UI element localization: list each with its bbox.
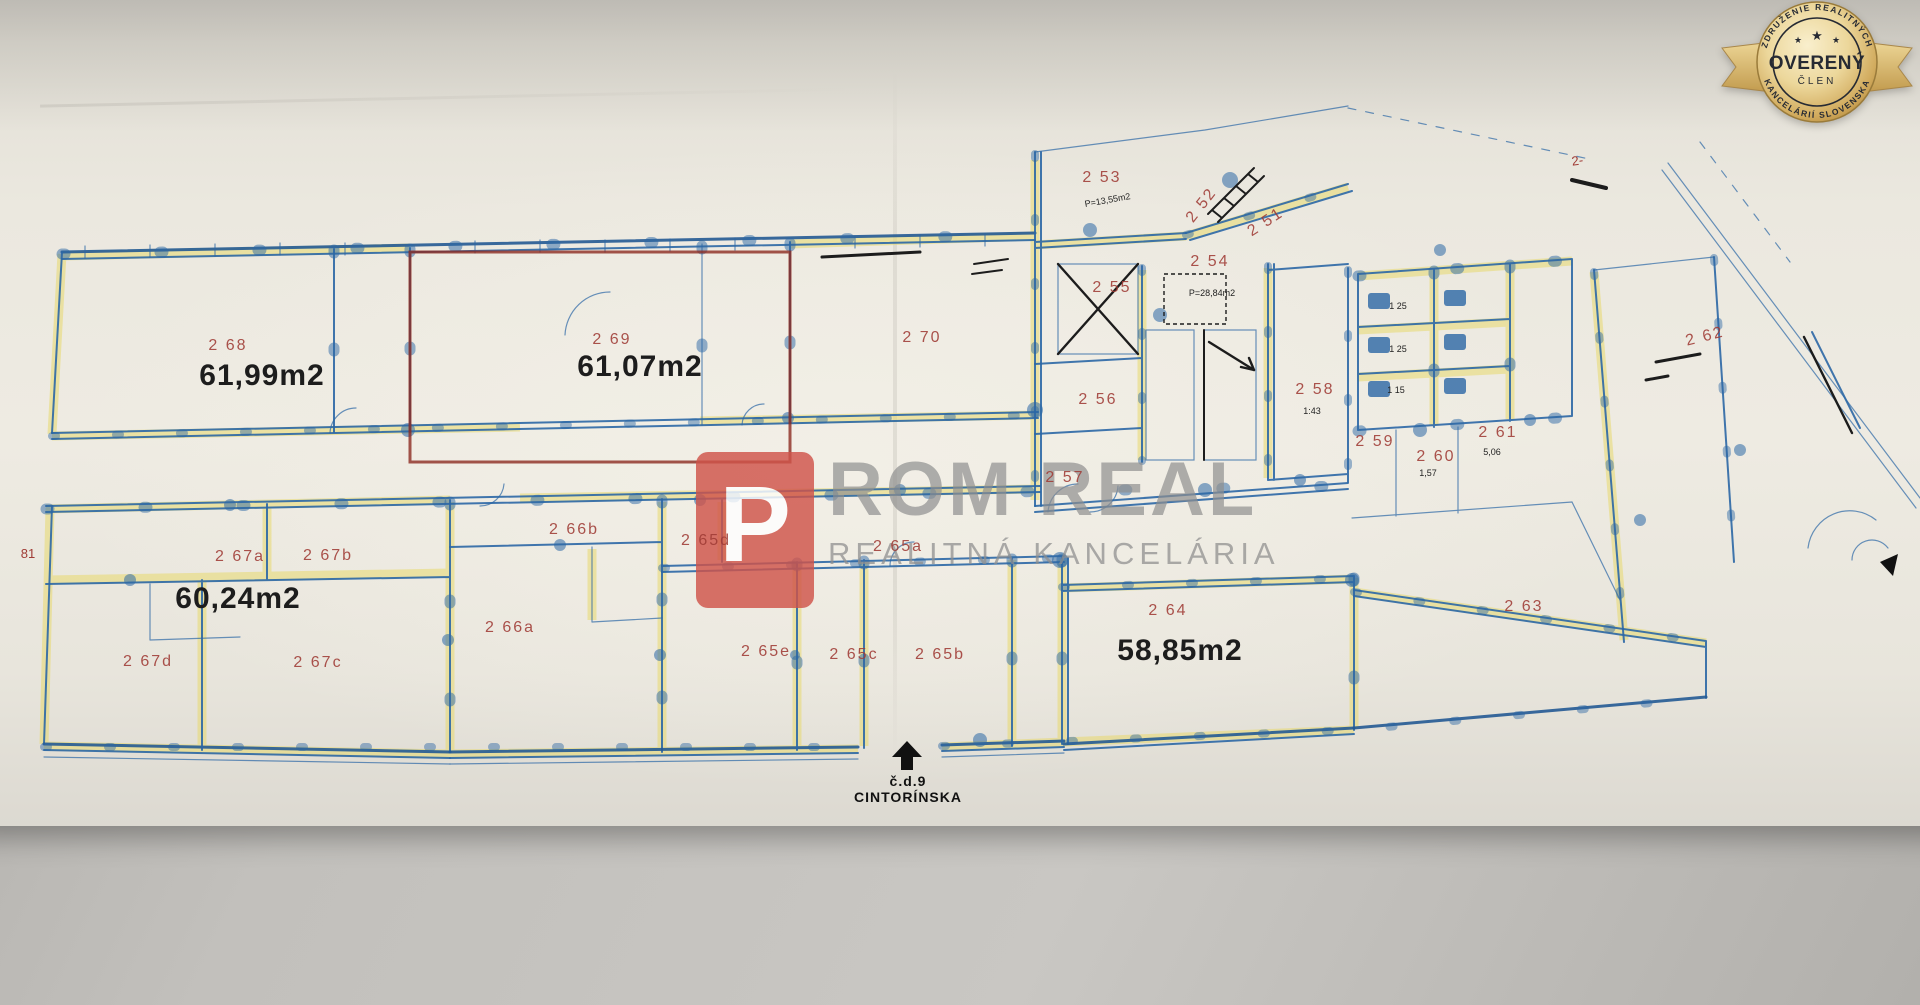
corner-mark-top-right: 2- xyxy=(1571,152,1585,168)
room-label-2-67c: 2 67c xyxy=(293,654,342,671)
room-label-2-65b: 2 65b xyxy=(915,646,965,663)
room-note-2-54: P=28,84m2 xyxy=(1189,288,1235,298)
room-label-2-67d: 2 67d xyxy=(123,653,173,670)
room-area-2-64: 58,85m2 xyxy=(1117,634,1242,667)
verified-badge: ★ ★ ★ OVERENÝ ČLEN ZDRUŽENIE REALITNÝCH … xyxy=(1712,0,1920,138)
corner-mark-81: 81 xyxy=(21,546,35,561)
room-note-2-58: 1:43 xyxy=(1303,406,1321,416)
room-label-2-69: 2 69 xyxy=(592,331,631,348)
room-label-2-56: 2 56 xyxy=(1078,391,1117,408)
entrance-arrow-icon xyxy=(892,741,922,770)
room-note-2-53: P=13,55m2 xyxy=(1084,191,1131,209)
room-label-2-55: 2 55 xyxy=(1092,279,1131,296)
room-note-2-61: 5,06 xyxy=(1483,447,1501,457)
room-label-2-52: 2 52 xyxy=(1183,185,1220,226)
room-label-2-61: 2 61 xyxy=(1478,424,1517,441)
room-label-2-58: 2 58 xyxy=(1295,381,1334,398)
room-label-2-70: 2 70 xyxy=(902,329,941,346)
direction-arrow-icon xyxy=(1880,554,1898,576)
badge-title: OVERENÝ xyxy=(1769,52,1865,74)
room-area-2-68: 61,99m2 xyxy=(199,359,324,392)
room-label-2-54: 2 54 xyxy=(1190,253,1229,270)
room-label-2-67a: 2 67a xyxy=(215,548,265,565)
floor-plan-labels: 2 68 61,99m2 2 69 61,07m2 2 70 2 53 P=13… xyxy=(0,0,1920,1005)
room-label-2-53: 2 53 xyxy=(1082,169,1121,186)
badge-subtitle: ČLEN xyxy=(1798,74,1837,87)
room-area-2-69: 61,07m2 xyxy=(577,350,702,383)
badge-star-left: ★ xyxy=(1794,35,1802,45)
floorplan-photo: P ROM REAL REALITNÁ KANCELÁRIA 2 68 61,9… xyxy=(0,0,1920,1005)
room-label-2-65a: 2 65a xyxy=(873,538,923,555)
room-label-2-59: 2 59 xyxy=(1355,433,1394,450)
stall-dim-1: 1 25 xyxy=(1389,301,1407,311)
room-label-2-63: 2 63 xyxy=(1504,598,1543,615)
verified-badge-seal: ★ ★ ★ OVERENÝ ČLEN ZDRUŽENIE REALITNÝCH … xyxy=(1712,0,1920,138)
room-label-2-65c: 2 65c xyxy=(829,646,878,663)
stall-dim-2: 1 25 xyxy=(1389,344,1407,354)
entrance-street-name: CINTORÍNSKA xyxy=(854,789,962,805)
stall-dim-3: 1 15 xyxy=(1387,385,1405,395)
room-note-2-60: 1,57 xyxy=(1419,468,1437,478)
room-label-2-51: 2 51 xyxy=(1245,204,1287,240)
room-label-2-68: 2 68 xyxy=(208,337,247,354)
room-label-2-64: 2 64 xyxy=(1148,602,1187,619)
room-label-2-62: 2 62 xyxy=(1684,324,1726,350)
room-label-2-66a: 2 66a xyxy=(485,619,535,636)
entrance-house-number: č.d.9 xyxy=(890,773,927,789)
room-label-2-60: 2 60 xyxy=(1416,448,1455,465)
room-label-2-65e: 2 65e xyxy=(741,643,791,660)
room-label-2-65d: 2 65d xyxy=(681,532,731,549)
badge-star-right: ★ xyxy=(1832,35,1840,45)
room-label-2-57: 2 57 xyxy=(1045,469,1084,486)
room-area-2-67: 60,24m2 xyxy=(175,582,300,615)
room-label-2-67b: 2 67b xyxy=(303,547,353,564)
badge-star-middle: ★ xyxy=(1811,28,1823,43)
room-label-2-66b: 2 66b xyxy=(549,521,599,538)
